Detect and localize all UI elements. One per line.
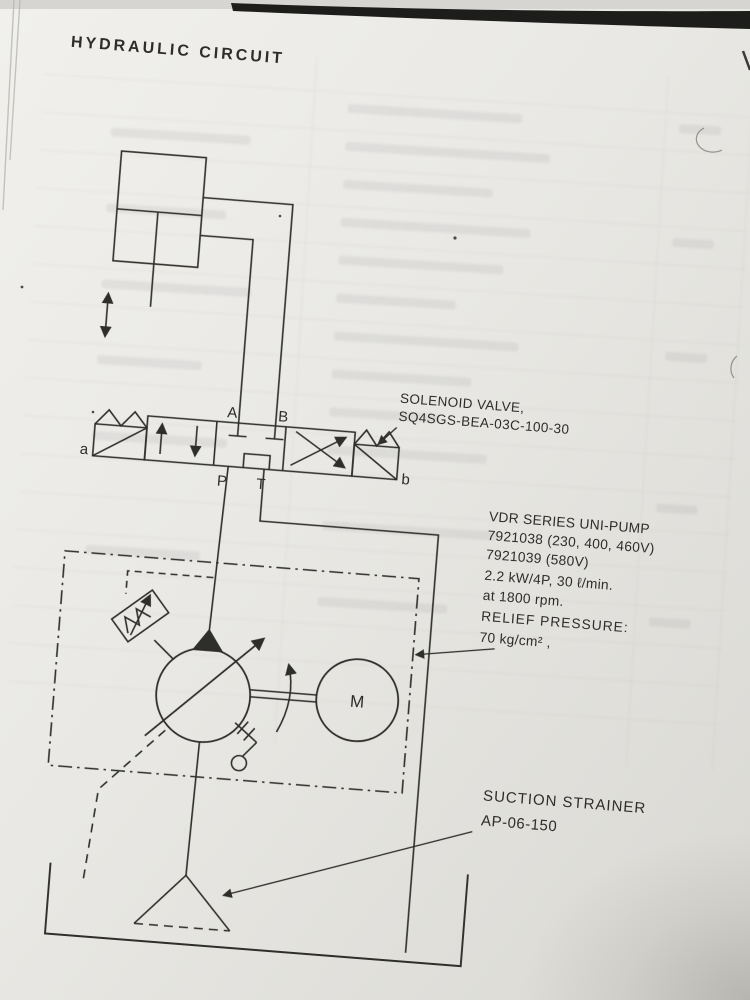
- port-t-label: T: [256, 476, 266, 494]
- hydraulic-circuit-figure: HYDRAULIC CIRCUIT: [0, 0, 750, 1000]
- solenoid-b-label: b: [401, 471, 411, 489]
- scanned-manual-page: HYDRAULIC CIRCUIT: [0, 0, 750, 1000]
- port-b-label: B: [278, 408, 289, 426]
- port-a-label: A: [227, 404, 238, 422]
- port-p-label: P: [216, 473, 227, 491]
- motor-label: M: [349, 692, 365, 712]
- photo-corner-shadow: [520, 830, 750, 1000]
